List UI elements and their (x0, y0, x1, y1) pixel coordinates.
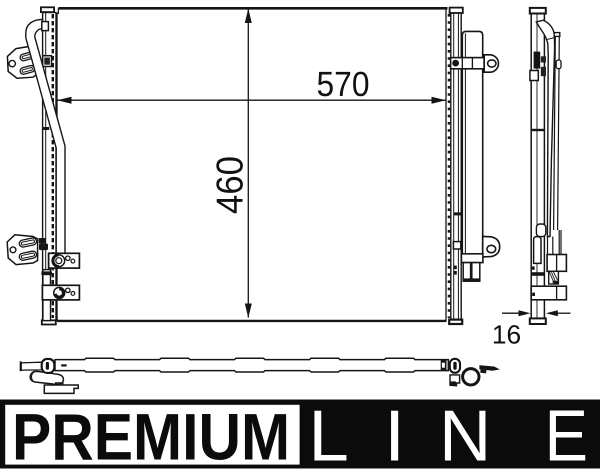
svg-text:I: I (384, 396, 405, 472)
svg-text:N: N (439, 396, 491, 472)
svg-text:L: L (309, 396, 349, 472)
svg-text:PREMIUM: PREMIUM (12, 401, 290, 472)
svg-text:E: E (545, 396, 589, 472)
